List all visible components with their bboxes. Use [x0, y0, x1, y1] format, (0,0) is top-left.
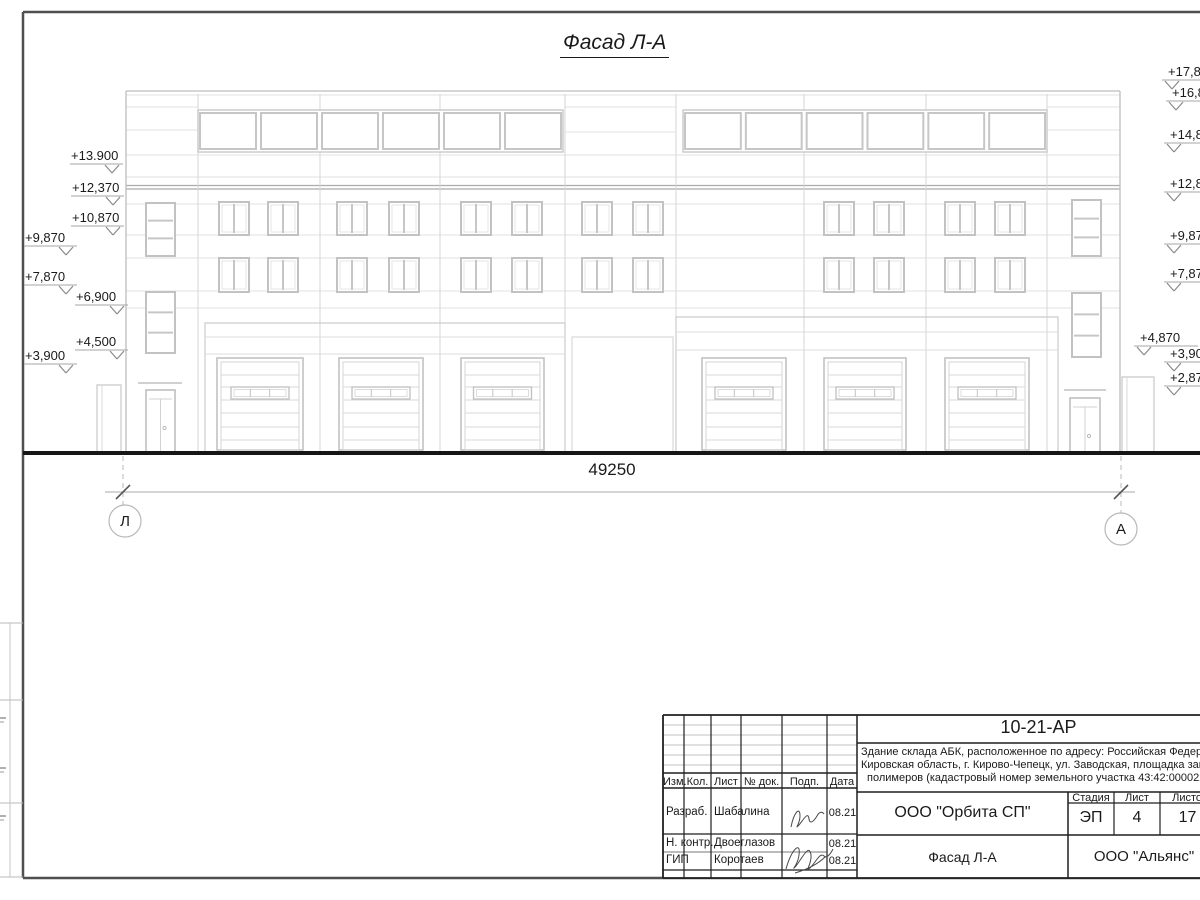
row-name: Двоеглазов: [714, 837, 775, 850]
elevation-mark-label: +6,900: [76, 290, 116, 305]
sheets-value: 17: [1160, 809, 1200, 827]
col-podp: Подп.: [782, 776, 827, 789]
project-description-line: полимеров (кадастровый номер земельного …: [867, 772, 1200, 785]
row-role: ГИП: [666, 854, 689, 867]
elevation-mark-label: +9,870: [1170, 229, 1200, 244]
elevation-mark-label: +10,870: [72, 211, 119, 226]
elevation-mark-label: +3,900: [1170, 347, 1200, 362]
elevation-mark-label: +7,870: [1170, 267, 1200, 282]
sheet-label: Лист: [1114, 792, 1160, 805]
elevation-mark-label: +16,870: [1172, 86, 1200, 101]
col-data: Дата: [827, 776, 857, 789]
elevation-mark-label: +14,870: [1170, 128, 1200, 143]
doc-number: 10-21-АР: [857, 717, 1200, 738]
row-date: 08.21: [828, 855, 857, 868]
elevation-mark-label: +2,870: [1170, 371, 1200, 386]
elevation-mark-label: +13.900: [71, 149, 118, 164]
row-date: 08.21: [828, 807, 857, 820]
sheets-label: Листов: [1160, 792, 1200, 805]
elevation-mark-label: +7,870: [25, 270, 65, 285]
axis-marker-right: А: [1105, 521, 1137, 538]
row-role: Н. контр.: [666, 837, 713, 850]
stage-label: Стадия: [1068, 792, 1114, 805]
elevation-mark-label: +17,870: [1168, 65, 1200, 80]
col-izm: Изм.: [663, 776, 684, 789]
axis-marker-left: Л: [109, 513, 141, 530]
elevation-mark-label: +9,870: [25, 231, 65, 246]
elevation-mark-label: +4,500: [76, 335, 116, 350]
row-role: Разраб.: [666, 806, 707, 819]
view-title: Фасад Л-А: [857, 849, 1068, 865]
elevation-mark-label: +3,900: [25, 349, 65, 364]
stage-value: ЭП: [1068, 809, 1114, 827]
elevation-mark-label: +12,870: [1170, 177, 1200, 192]
row-date: 08.21: [828, 838, 857, 851]
project-description-line: Кировская область, г. Кирово-Чепецк, ул.…: [861, 759, 1200, 772]
sheet-value: 4: [1114, 809, 1160, 827]
drawing-title: Фасад Л-А: [560, 31, 669, 58]
elevation-mark-label: +4,870: [1140, 331, 1180, 346]
col-ndok: № док.: [741, 776, 782, 789]
elevation-mark-label: +12,370: [72, 181, 119, 196]
dimension-label: 49250: [562, 460, 662, 480]
organization-name: ООО "Орбита СП": [857, 804, 1068, 822]
col-list: Лист: [711, 776, 741, 789]
col-kol: Кол.: [684, 776, 711, 789]
project-description-line: Здание склада АБК, расположенное по адре…: [861, 746, 1200, 759]
contractor-name: ООО "Альянс": [1068, 848, 1200, 865]
row-name: Шабалина: [714, 806, 770, 819]
row-name: Коротаев: [714, 854, 764, 867]
